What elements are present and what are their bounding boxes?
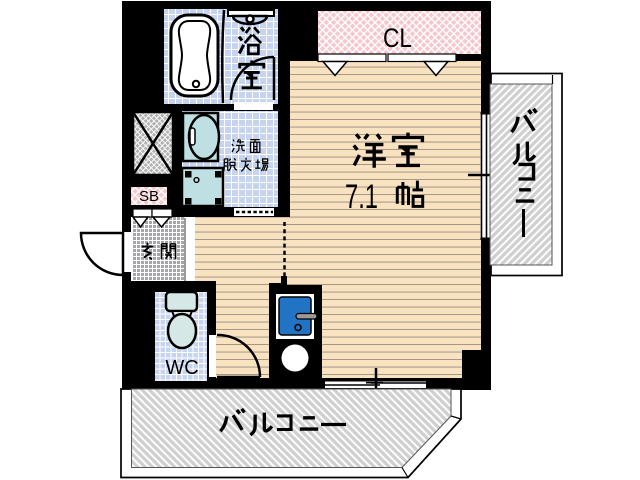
svg-text:CL: CL xyxy=(383,23,412,53)
svg-text:WC: WC xyxy=(165,357,198,379)
svg-text:SB: SB xyxy=(139,188,159,205)
svg-text:7.1: 7.1 xyxy=(345,178,378,216)
